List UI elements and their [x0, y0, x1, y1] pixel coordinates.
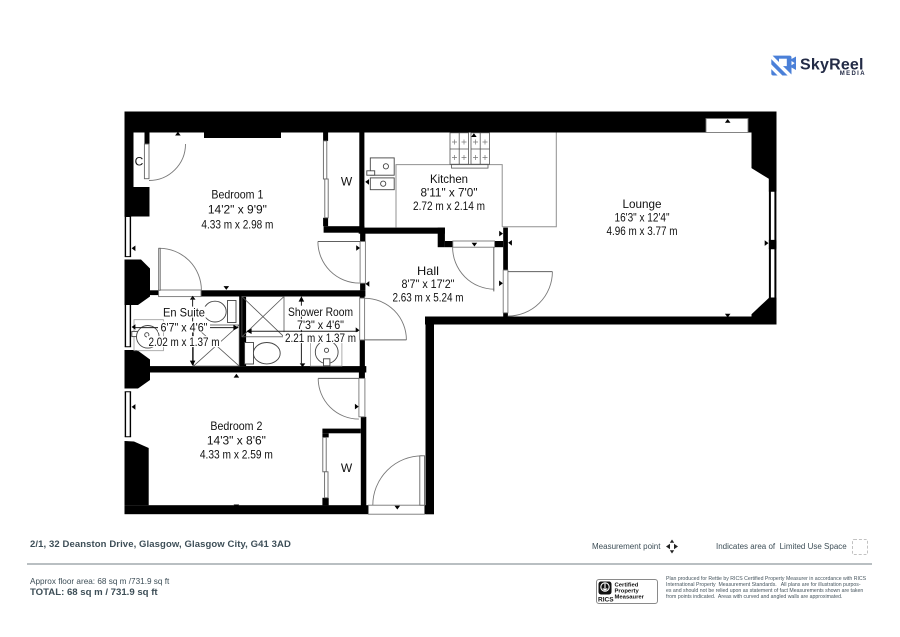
svg-text:Hall: Hall — [417, 264, 439, 278]
svg-text:16'3" x 12'4": 16'3" x 12'4" — [615, 211, 670, 225]
svg-text:6'7" x 4'6": 6'7" x 4'6" — [161, 321, 208, 335]
svg-text:Measaurer: Measaurer — [615, 595, 645, 601]
svg-text:Shower Room: Shower Room — [288, 305, 353, 319]
svg-text:7'3" x 4'6": 7'3" x 4'6" — [297, 318, 344, 332]
svg-text:14'3" x 8'6": 14'3" x 8'6" — [207, 433, 266, 447]
svg-text:4.33 m x 2.59 m: 4.33 m x 2.59 m — [200, 448, 273, 462]
svg-text:Bedroom 2: Bedroom 2 — [210, 419, 262, 433]
svg-text:4.96 m x 3.77 m: 4.96 m x 3.77 m — [607, 224, 678, 238]
svg-text:Kitchen: Kitchen — [430, 172, 468, 186]
svg-text:8'11" x 7'0": 8'11" x 7'0" — [421, 186, 478, 200]
svg-text:14'2" x 9'9": 14'2" x 9'9" — [208, 203, 267, 217]
svg-text:2.63 m x 5.24 m: 2.63 m x 5.24 m — [393, 291, 464, 305]
svg-text:W: W — [341, 174, 353, 188]
svg-text:C: C — [135, 155, 144, 169]
svg-text:RICS: RICS — [598, 597, 614, 604]
svg-text:2.72 m x 2.14 m: 2.72 m x 2.14 m — [413, 199, 485, 213]
svg-text:4.33 m x 2.98 m: 4.33 m x 2.98 m — [201, 217, 273, 231]
svg-text:2.02 m x 1.37 m: 2.02 m x 1.37 m — [149, 335, 220, 349]
svg-text:2.21 m x 1.37 m: 2.21 m x 1.37 m — [285, 331, 356, 345]
svg-text:Lounge: Lounge — [623, 197, 662, 211]
svg-text:Bedroom 1: Bedroom 1 — [211, 188, 263, 202]
svg-text:8'7" x 17'2": 8'7" x 17'2" — [402, 277, 455, 291]
svg-text:W: W — [341, 461, 353, 475]
svg-text:En Suite: En Suite — [163, 306, 205, 320]
svg-text:MEDIA: MEDIA — [840, 71, 866, 77]
